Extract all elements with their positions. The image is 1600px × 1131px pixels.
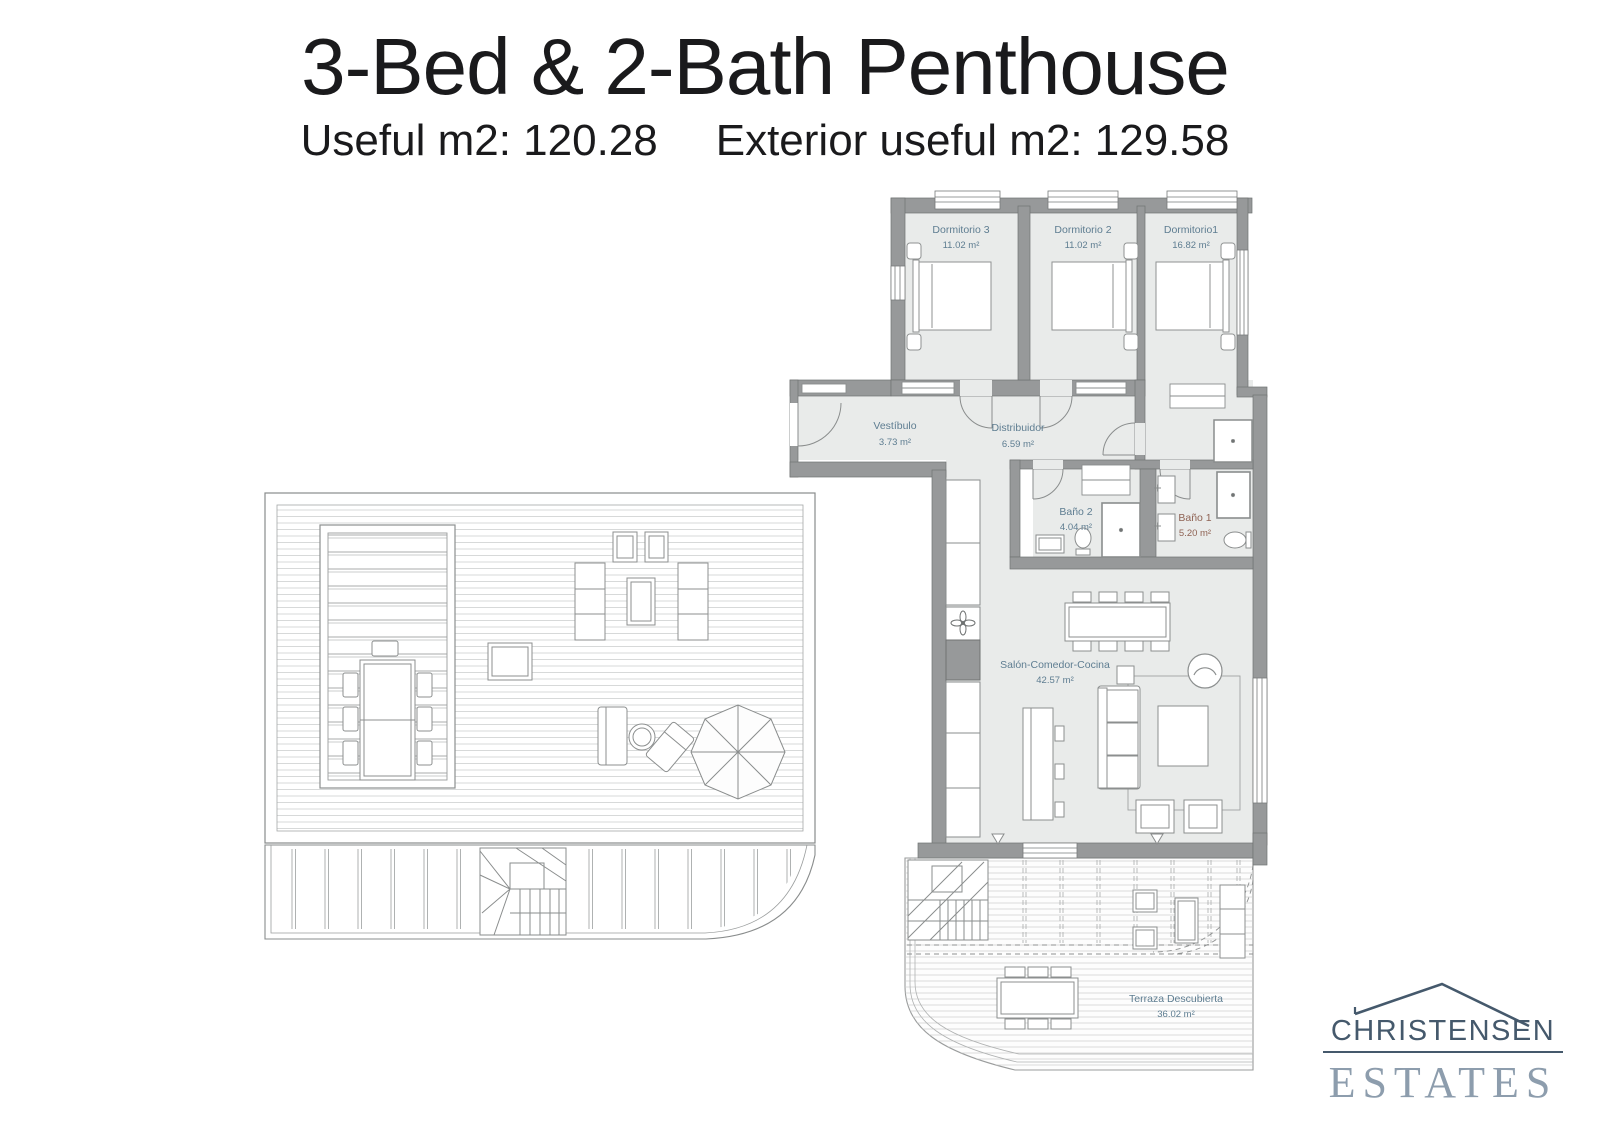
room-label-vestibulo: Vestíbulo <box>873 420 916 432</box>
exterior-area-text: Exterior useful m2: 129.58 <box>716 116 1230 166</box>
floor-lamp-icon <box>1188 654 1222 688</box>
room-label-salon: Salón-Comedor-Cocina <box>1000 659 1110 671</box>
logo-divider <box>1323 1051 1563 1053</box>
area-subtitle: Useful m2: 120.28 Exterior useful m2: 12… <box>35 116 1495 166</box>
roof-terrace-plan <box>258 483 818 953</box>
header: 3-Bed & 2-Bath Penthouse Useful m2: 120.… <box>35 24 1495 166</box>
apartment-plan: Dormitorio 3 11.02 m² Dormitorio 2 11.02… <box>780 188 1270 1098</box>
terrace-dining-table-icon <box>997 967 1078 1029</box>
brand-suffix: ESTATES <box>1303 1057 1583 1108</box>
private-terrace <box>905 858 1253 1070</box>
side-table-icon <box>488 643 532 680</box>
brand-logo: CHRISTENSEN ESTATES <box>1293 958 1593 1118</box>
room-area-bano2: 4.04 m² <box>1060 522 1092 533</box>
room-label-bano2: Baño 2 <box>1059 506 1092 518</box>
room-area-dormitorio1: 16.82 m² <box>1172 240 1210 251</box>
useful-area-text: Useful m2: 120.28 <box>301 116 658 166</box>
room-label-dormitorio1: Dormitorio1 <box>1164 224 1218 236</box>
room-area-dormitorio2: 11.02 m² <box>1065 240 1102 251</box>
side-table-icon <box>1117 666 1134 684</box>
kitchen-counter-icon <box>946 480 980 837</box>
dining-table-icon <box>1065 592 1170 651</box>
room-label-dormitorio3: Dormitorio 3 <box>932 224 989 236</box>
brand-name: CHRISTENSEN <box>1323 1015 1563 1048</box>
room-area-terraza: 36.02 m² <box>1157 1009 1195 1020</box>
room-label-bano1: Baño 1 <box>1178 512 1211 524</box>
room-area-vestibulo: 3.73 m² <box>879 437 911 448</box>
room-label-distribuidor: Distribuidor <box>991 422 1045 434</box>
room-area-distribuidor: 6.59 m² <box>1002 439 1034 450</box>
stairs-icon <box>480 848 566 935</box>
penthouse-flyer: 3-Bed & 2-Bath Penthouse Useful m2: 120.… <box>0 0 1600 1131</box>
room-area-salon: 42.57 m² <box>1036 675 1074 686</box>
room-label-terraza: Terraza Descubierta <box>1129 993 1223 1005</box>
room-area-dormitorio3: 11.02 m² <box>943 240 980 251</box>
coffee-table-icon <box>1158 706 1208 766</box>
umbrella-icon <box>691 705 785 799</box>
terrace-stairs-icon <box>908 860 988 940</box>
room-label-dormitorio2: Dormitorio 2 <box>1054 224 1111 236</box>
sofa-icon <box>1098 686 1140 789</box>
room-area-bano1: 5.20 m² <box>1179 528 1211 539</box>
page-title: 3-Bed & 2-Bath Penthouse <box>35 24 1495 110</box>
